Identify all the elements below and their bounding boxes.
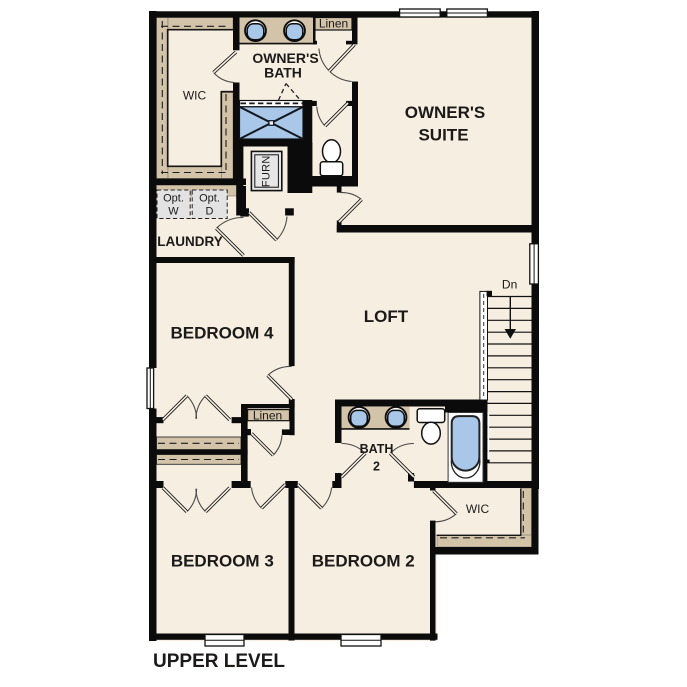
svg-text:LAUNDRY: LAUNDRY [157, 234, 223, 249]
svg-text:SUITE: SUITE [418, 126, 468, 145]
svg-text:BEDROOM 2: BEDROOM 2 [312, 551, 415, 570]
svg-text:FURN: FURN [261, 155, 273, 187]
svg-text:UPPER LEVEL: UPPER LEVEL [153, 651, 285, 672]
svg-text:BATH: BATH [264, 64, 302, 80]
svg-text:OWNER'S: OWNER'S [405, 103, 486, 122]
svg-text:BEDROOM 3: BEDROOM 3 [171, 551, 274, 570]
svg-text:WIC: WIC [466, 502, 490, 516]
svg-text:Opt.: Opt. [199, 192, 220, 204]
svg-text:WIC: WIC [183, 89, 207, 103]
svg-text:Linen: Linen [319, 17, 348, 31]
svg-text:Opt.: Opt. [163, 192, 184, 204]
svg-text:LOFT: LOFT [364, 307, 409, 326]
svg-text:2: 2 [373, 460, 380, 474]
svg-text:Dn: Dn [502, 277, 517, 291]
svg-text:Linen: Linen [253, 408, 282, 422]
svg-text:W: W [168, 205, 179, 217]
svg-text:BEDROOM 4: BEDROOM 4 [171, 324, 275, 343]
svg-text:D: D [206, 205, 214, 217]
svg-text:BATH: BATH [360, 442, 394, 456]
